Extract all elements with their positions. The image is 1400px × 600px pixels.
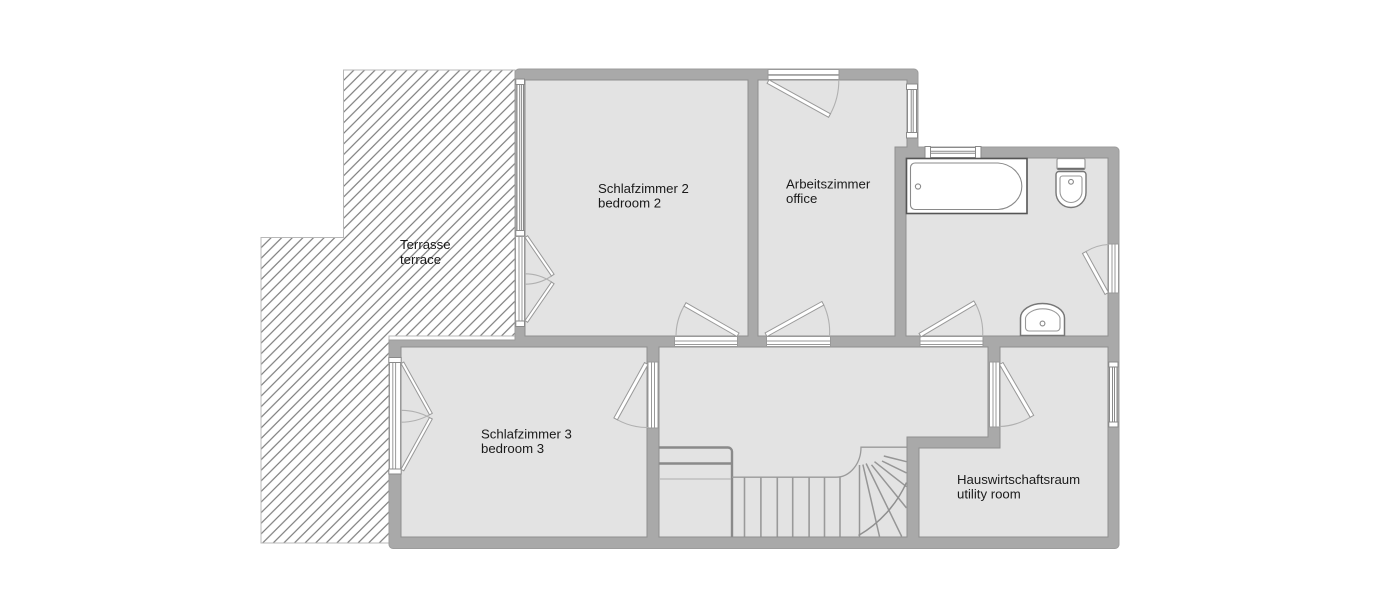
svg-text:bedroom 2: bedroom 2 <box>598 196 661 211</box>
svg-text:terrace: terrace <box>400 252 441 267</box>
svg-text:office: office <box>786 191 817 206</box>
svg-text:bedroom 3: bedroom 3 <box>481 441 544 456</box>
svg-text:Schlafzimmer 3: Schlafzimmer 3 <box>481 427 572 442</box>
svg-text:Terrasse: Terrasse <box>400 237 451 252</box>
svg-text:Schlafzimmer 2: Schlafzimmer 2 <box>598 181 689 196</box>
svg-text:utility room: utility room <box>957 487 1021 502</box>
svg-text:Arbeitszimmer: Arbeitszimmer <box>786 177 871 192</box>
svg-text:Hauswirtschaftsraum: Hauswirtschaftsraum <box>957 472 1080 487</box>
